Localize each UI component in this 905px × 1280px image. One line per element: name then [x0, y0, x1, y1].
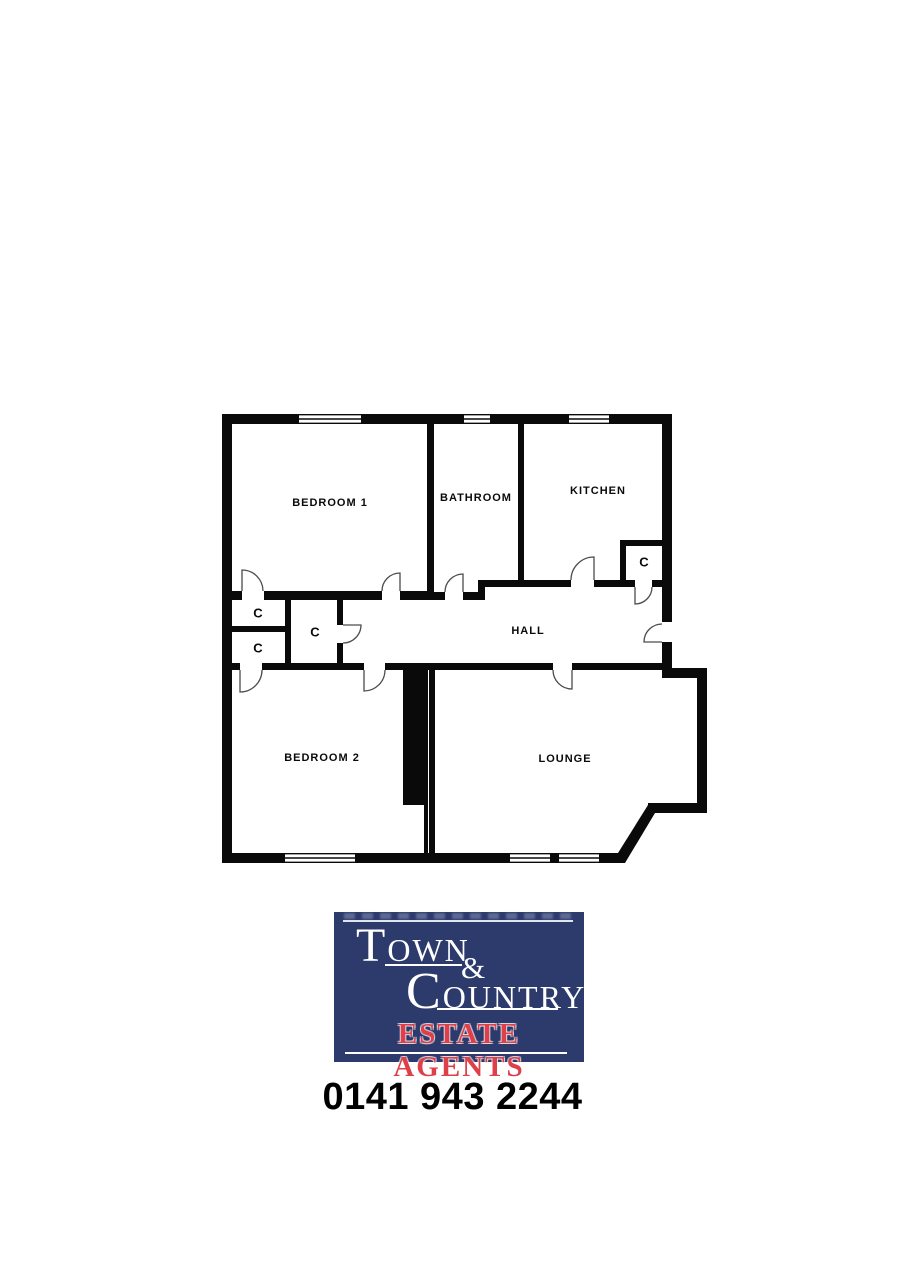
door-arc-lounge [553, 670, 572, 689]
phone-number: 0141 943 2244 [0, 1076, 905, 1119]
wall-bottom [222, 853, 285, 863]
wall-diagonal [618, 805, 655, 863]
wall-bedroom1-bottom [264, 591, 382, 600]
door-arc-bedroom1 [382, 573, 400, 591]
window [510, 853, 550, 863]
wall-kitchen-cupboard-top [620, 540, 662, 546]
wall-kitchen-bottom [594, 580, 635, 587]
logo-bottom-rule [345, 1052, 567, 1054]
window [569, 414, 609, 424]
wall-closet-right [337, 600, 343, 625]
wall-cupboard-divider [232, 626, 291, 632]
cupboard-label: C [310, 625, 319, 640]
door-arc-kitchen-cupboard [635, 587, 652, 604]
room-label-bathroom: BATHROOM [440, 492, 512, 504]
wall-cupboard-vertical [285, 600, 291, 663]
cupboard-label: C [253, 641, 262, 656]
page: BEDROOM 1 BATHROOM KITCHEN HALL BEDROOM … [0, 0, 905, 1280]
estate-agent-logo: TOWN & COUNTRY ESTATE AGENTS [334, 912, 584, 1062]
logo-town-initial: T [356, 919, 387, 972]
door-arc-bedroom1-cupboard [242, 570, 263, 591]
logo-word-country: COUNTRY [406, 962, 586, 1021]
door-arc-kitchen [571, 557, 594, 580]
wall-bedroom1-bottom [400, 591, 427, 600]
logo-country-initial: C [406, 963, 443, 1020]
window [285, 853, 355, 863]
room-label-bedroom2: BEDROOM 2 [284, 752, 360, 764]
door-arc-bedroom2 [364, 670, 385, 691]
wall-kitchen-bottom [481, 580, 571, 587]
wall-bedroom1-bathroom [427, 424, 434, 600]
door-arc-hall-closet [343, 625, 361, 643]
wall-lounge-left [429, 670, 435, 853]
wall-hall-bottom [572, 663, 662, 670]
wall-bathroom-kitchen [518, 424, 524, 587]
wall-bottom [355, 853, 510, 863]
wall-lounge-top [662, 668, 707, 678]
wall-bedroom1-bottom [232, 591, 242, 600]
wall-right-upper [662, 414, 672, 622]
window [464, 414, 490, 424]
wall-kitchen-bottom [652, 580, 662, 587]
floorplan-drawing [222, 414, 707, 863]
logo-country-underline [437, 1008, 558, 1010]
logo-tagline: ESTATE AGENTS [334, 1018, 584, 1084]
cupboard-label: C [253, 606, 262, 621]
wall-hall-bottom [262, 663, 364, 670]
window [299, 414, 361, 424]
wall-hall-bottom [232, 663, 240, 670]
room-label-hall: HALL [511, 625, 544, 637]
wall-left [222, 414, 232, 863]
door-arc-bedroom2-cupboard [240, 670, 262, 692]
room-label-bedroom1: BEDROOM 1 [292, 497, 368, 509]
door-arc-entrance [644, 624, 662, 642]
room-label-lounge: LOUNGE [538, 753, 591, 765]
wall-bedroom2-right [424, 805, 428, 853]
wall-bottom-mullion [550, 853, 559, 863]
wall-right-lower [662, 642, 672, 670]
room-label-kitchen: KITCHEN [570, 485, 626, 497]
wall-partition-block [403, 663, 428, 805]
cupboard-label: C [639, 555, 648, 570]
window [559, 853, 599, 863]
wall-lounge-right [697, 668, 707, 813]
door-arc-bathroom [445, 574, 463, 592]
wall-bathroom-bottom [434, 592, 445, 600]
wall-closet-right [337, 643, 343, 663]
